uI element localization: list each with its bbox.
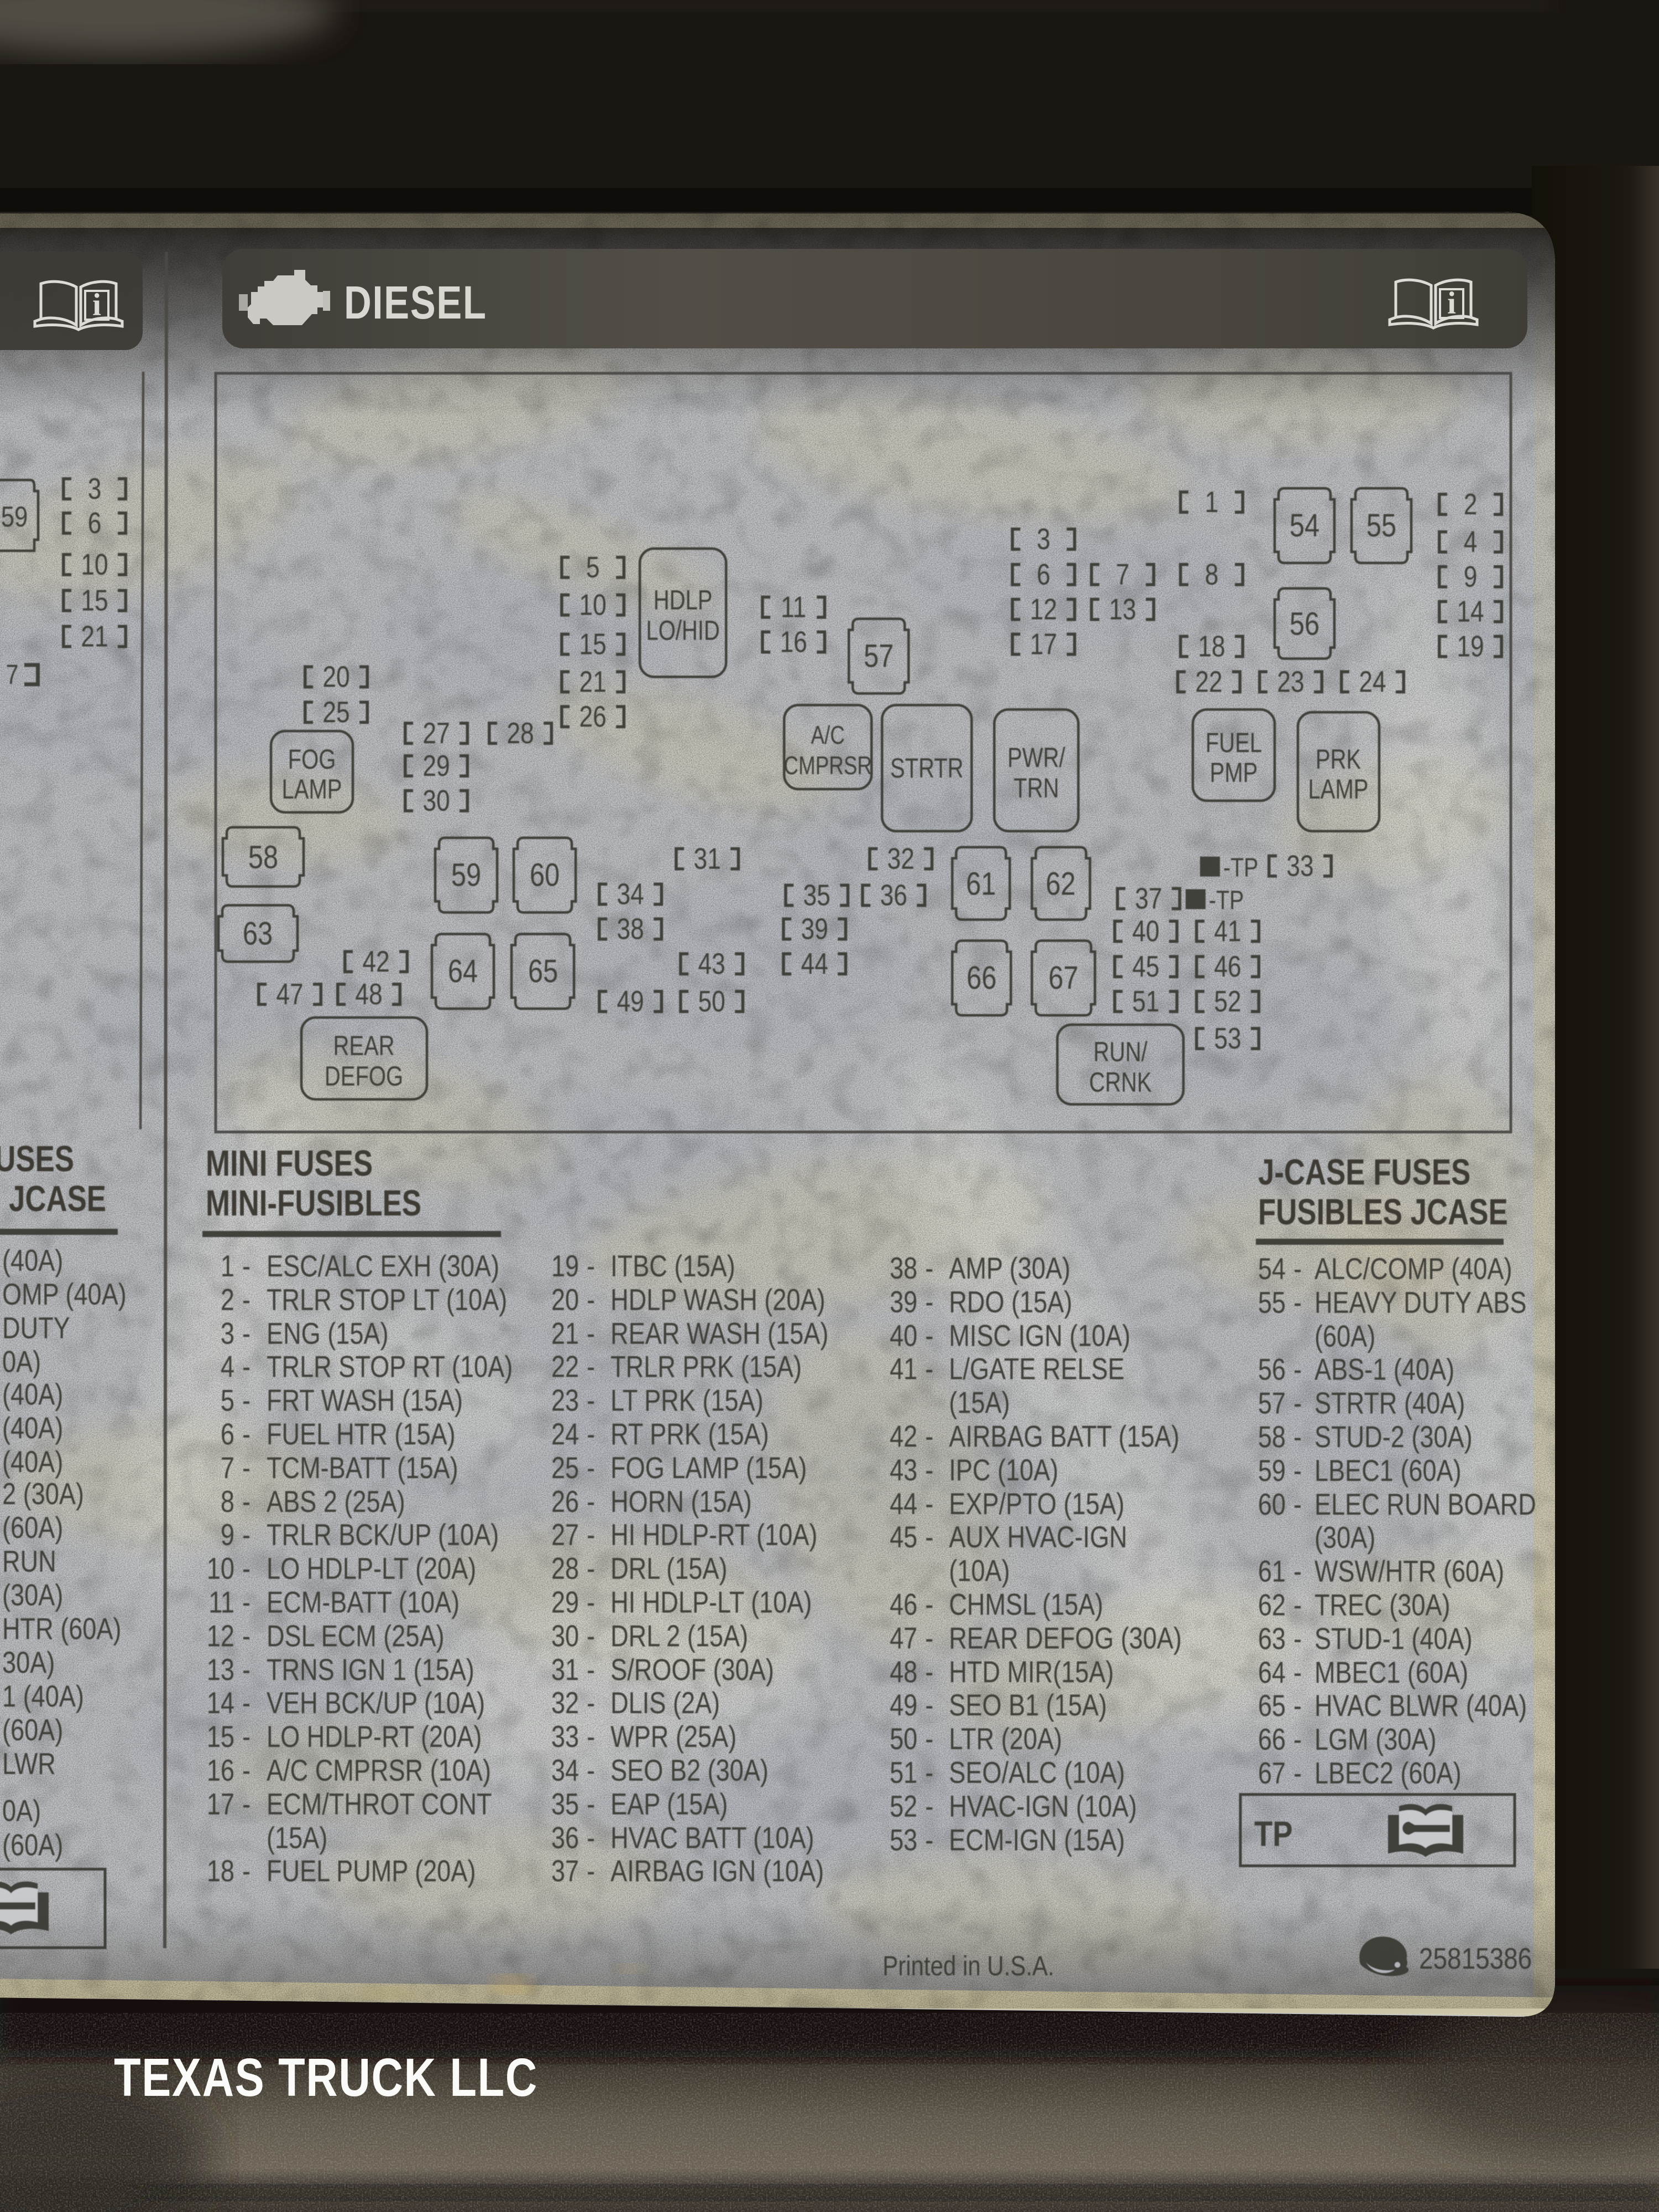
svg-text:42: 42 [890, 1419, 917, 1453]
svg-text:-: - [1293, 1352, 1302, 1386]
svg-text:MISC IGN (10A): MISC IGN (10A) [949, 1318, 1130, 1353]
svg-text:36: 36 [551, 1820, 579, 1855]
svg-text:(40A): (40A) [2, 1377, 63, 1411]
svg-text:58: 58 [1258, 1420, 1286, 1454]
svg-text:-: - [1293, 1487, 1302, 1521]
svg-text:30: 30 [422, 784, 450, 817]
svg-text:-: - [242, 1719, 251, 1754]
svg-text:-: - [242, 1619, 251, 1653]
svg-text:47: 47 [890, 1621, 917, 1655]
svg-text:13: 13 [1109, 593, 1136, 626]
svg-text:-: - [587, 1417, 595, 1451]
svg-text:-: - [1293, 1655, 1302, 1689]
svg-text:FUSES: FUSES [0, 1138, 74, 1179]
svg-text:60: 60 [530, 858, 560, 893]
svg-text:ABS 2 (25A): ABS 2 (25A) [267, 1484, 405, 1519]
svg-text:25: 25 [551, 1451, 579, 1485]
svg-text:-: - [587, 1619, 595, 1653]
svg-text:12: 12 [1030, 593, 1057, 626]
svg-text:-: - [242, 1484, 251, 1519]
svg-text:(40A): (40A) [2, 1243, 63, 1277]
svg-text:64: 64 [448, 954, 478, 989]
svg-text:WPR (25A): WPR (25A) [611, 1719, 737, 1754]
svg-text:AUX HVAC-IGN: AUX HVAC-IGN [949, 1520, 1127, 1554]
svg-text:56: 56 [1258, 1352, 1286, 1386]
svg-text:VEH BCK/UP (10A): VEH BCK/UP (10A) [267, 1686, 485, 1720]
svg-text:54: 54 [1290, 508, 1319, 544]
svg-text:19: 19 [551, 1249, 579, 1283]
svg-text:L/GATE RELSE: L/GATE RELSE [949, 1352, 1124, 1386]
svg-text:-: - [587, 1585, 595, 1619]
svg-text:(40A): (40A) [2, 1444, 63, 1479]
svg-text:HI HDLP-RT (10A): HI HDLP-RT (10A) [611, 1517, 817, 1552]
svg-text:49: 49 [890, 1688, 917, 1722]
svg-text:-: - [925, 1453, 933, 1487]
svg-text:44: 44 [890, 1486, 917, 1521]
svg-text:-: - [1293, 1756, 1302, 1790]
svg-text:4: 4 [221, 1349, 234, 1384]
svg-text:SEO B1 (15A): SEO B1 (15A) [949, 1688, 1107, 1722]
svg-text:35: 35 [551, 1787, 579, 1821]
svg-text:51: 51 [1132, 985, 1159, 1018]
svg-text:19: 19 [1457, 630, 1484, 663]
svg-text:37: 37 [551, 1854, 579, 1888]
svg-text:10: 10 [81, 548, 108, 581]
svg-text:i: i [1447, 286, 1456, 321]
svg-text:-: - [925, 1621, 933, 1655]
svg-text:30A): 30A) [2, 1645, 55, 1679]
svg-text:9: 9 [1464, 560, 1478, 593]
svg-text:-: - [1293, 1251, 1302, 1286]
svg-text:46: 46 [1214, 950, 1241, 983]
svg-text:27: 27 [422, 717, 450, 750]
svg-text:DSL ECM (25A): DSL ECM (25A) [267, 1619, 445, 1653]
svg-text:-: - [1293, 1386, 1302, 1420]
svg-text:TRLR BCK/UP (10A): TRLR BCK/UP (10A) [267, 1517, 499, 1552]
svg-text:15: 15 [207, 1719, 234, 1754]
svg-text:REAR: REAR [333, 1030, 394, 1061]
svg-text:23: 23 [551, 1383, 579, 1417]
svg-text:38: 38 [890, 1251, 917, 1285]
svg-text:18: 18 [207, 1854, 234, 1888]
svg-text:-: - [242, 1753, 251, 1787]
svg-text:28: 28 [551, 1551, 579, 1585]
svg-text:-: - [242, 1349, 251, 1384]
svg-text:-: - [925, 1688, 933, 1722]
svg-text:6: 6 [221, 1417, 234, 1451]
svg-text:-: - [1293, 1554, 1302, 1588]
svg-text:66: 66 [1258, 1722, 1286, 1756]
svg-text:41: 41 [890, 1352, 917, 1386]
svg-text:-: - [587, 1787, 595, 1821]
svg-text:(30A): (30A) [2, 1578, 63, 1612]
svg-text:49: 49 [617, 985, 644, 1018]
svg-text:21: 21 [81, 620, 108, 653]
svg-text:-: - [587, 1854, 595, 1888]
svg-text:4: 4 [1464, 525, 1478, 559]
svg-text:EXP/PTO (15A): EXP/PTO (15A) [949, 1486, 1124, 1521]
svg-text:FOG: FOG [288, 744, 336, 775]
svg-text:10: 10 [579, 588, 606, 622]
svg-text:REAR DEFOG (30A): REAR DEFOG (30A) [949, 1621, 1182, 1655]
svg-text:2: 2 [1464, 488, 1478, 521]
svg-text:15: 15 [579, 628, 606, 661]
svg-text:(30A): (30A) [1314, 1520, 1375, 1554]
svg-text:53: 53 [890, 1823, 917, 1857]
svg-text:LWR: LWR [2, 1746, 56, 1781]
svg-text:SEO/ALC (10A): SEO/ALC (10A) [949, 1755, 1125, 1790]
svg-text:OMP (40A): OMP (40A) [2, 1277, 127, 1311]
svg-text:34: 34 [551, 1753, 579, 1787]
svg-text:TRLR STOP RT (10A): TRLR STOP RT (10A) [267, 1349, 513, 1384]
svg-text:-: - [1293, 1588, 1302, 1622]
svg-text:DEFOG: DEFOG [325, 1061, 403, 1092]
svg-text:RT PRK (15A): RT PRK (15A) [611, 1417, 769, 1451]
svg-text:7: 7 [6, 659, 19, 690]
svg-text:22: 22 [551, 1349, 579, 1384]
svg-text:2 (30A): 2 (30A) [2, 1477, 84, 1511]
svg-text:0A): 0A) [2, 1344, 41, 1379]
svg-text:20: 20 [322, 660, 349, 693]
svg-text:21: 21 [551, 1316, 579, 1350]
svg-text:43: 43 [698, 947, 725, 980]
svg-text:43: 43 [890, 1453, 917, 1487]
svg-text:-: - [925, 1587, 933, 1621]
svg-text:16: 16 [780, 625, 807, 659]
svg-text:-: - [242, 1249, 251, 1283]
svg-text:45: 45 [1132, 950, 1159, 983]
svg-text:HEAVY DUTY ABS: HEAVY DUTY ABS [1314, 1285, 1526, 1319]
svg-text:MINI FUSES: MINI FUSES [206, 1142, 373, 1183]
svg-text:-: - [1293, 1688, 1302, 1723]
svg-text:15: 15 [81, 584, 108, 617]
svg-text:25815386: 25815386 [1419, 1942, 1532, 1975]
svg-text:LAMP: LAMP [1308, 774, 1369, 805]
svg-text:FUEL PUMP (20A): FUEL PUMP (20A) [267, 1854, 476, 1888]
svg-text:29: 29 [422, 749, 450, 782]
svg-text:48: 48 [355, 978, 382, 1011]
svg-text:37: 37 [1135, 882, 1162, 915]
svg-text:39: 39 [801, 912, 828, 946]
svg-text:STUD-2 (30A): STUD-2 (30A) [1314, 1420, 1473, 1454]
svg-text:-: - [925, 1285, 933, 1319]
svg-text:DIESEL: DIESEL [344, 277, 487, 329]
svg-text:40: 40 [890, 1318, 917, 1353]
svg-text:8: 8 [221, 1484, 234, 1519]
svg-text:40: 40 [1132, 915, 1159, 948]
svg-text:65: 65 [528, 954, 558, 989]
svg-text:-: - [587, 1316, 595, 1350]
svg-text:26: 26 [551, 1484, 579, 1519]
svg-text:38: 38 [617, 912, 644, 946]
svg-text:TRNS IGN 1 (15A): TRNS IGN 1 (15A) [267, 1652, 474, 1687]
svg-text:TREC (30A): TREC (30A) [1314, 1588, 1451, 1622]
svg-text:46: 46 [890, 1587, 917, 1621]
svg-text:-: - [242, 1517, 251, 1552]
svg-text:RUN: RUN [2, 1544, 56, 1578]
svg-text:59: 59 [451, 858, 481, 893]
svg-text:WSW/HTR (60A): WSW/HTR (60A) [1314, 1554, 1504, 1588]
svg-text:LAMP: LAMP [282, 774, 342, 805]
svg-text:ECM-BATT (10A): ECM-BATT (10A) [267, 1585, 460, 1619]
svg-text:MBEC1 (60A): MBEC1 (60A) [1314, 1655, 1468, 1689]
svg-text:51: 51 [890, 1755, 917, 1790]
svg-text:ELEC RUN BOARD: ELEC RUN BOARD [1314, 1487, 1536, 1521]
svg-text:CRNK: CRNK [1089, 1067, 1151, 1098]
svg-text:CMPRSR: CMPRSR [784, 751, 872, 780]
svg-text:56: 56 [1290, 607, 1319, 642]
svg-text:STRTR (40A): STRTR (40A) [1314, 1386, 1465, 1420]
svg-text:5: 5 [586, 551, 600, 584]
svg-text:11: 11 [781, 591, 806, 624]
svg-text:3: 3 [88, 472, 102, 505]
svg-text:-: - [587, 1282, 595, 1317]
svg-text:ENG (15A): ENG (15A) [267, 1316, 388, 1350]
svg-text:-: - [587, 1820, 595, 1855]
svg-text:(40A): (40A) [2, 1411, 63, 1445]
svg-text:36: 36 [880, 879, 907, 912]
svg-text:7: 7 [1116, 558, 1130, 591]
svg-text:67: 67 [1048, 961, 1078, 996]
svg-text:-: - [1293, 1285, 1302, 1319]
svg-text:22: 22 [1195, 665, 1222, 698]
svg-text:(15A): (15A) [267, 1820, 327, 1855]
svg-text:2: 2 [221, 1282, 234, 1317]
svg-text:48: 48 [890, 1655, 917, 1689]
svg-text:-: - [925, 1352, 933, 1386]
svg-text:-: - [925, 1789, 933, 1823]
svg-text:32: 32 [887, 842, 914, 875]
svg-text:DUTY: DUTY [2, 1311, 70, 1345]
svg-text:IPC (10A): IPC (10A) [949, 1453, 1058, 1487]
svg-text:61: 61 [966, 867, 996, 902]
svg-text:-: - [1293, 1453, 1302, 1488]
svg-text:A/C: A/C [811, 721, 844, 749]
svg-text:HORN (15A): HORN (15A) [611, 1484, 752, 1519]
svg-text:6: 6 [88, 507, 102, 540]
svg-text:-: - [925, 1520, 933, 1554]
svg-text:12: 12 [207, 1619, 234, 1653]
svg-text:PWR/: PWR/ [1008, 742, 1066, 773]
svg-text:FUEL: FUEL [1206, 727, 1262, 758]
svg-text:16: 16 [207, 1753, 234, 1787]
svg-text:LTR (20A): LTR (20A) [949, 1721, 1062, 1756]
svg-text:i: i [92, 288, 101, 322]
svg-text:50: 50 [698, 985, 725, 1018]
svg-text:23: 23 [1277, 665, 1304, 698]
svg-text:DLIS (2A): DLIS (2A) [611, 1686, 720, 1720]
svg-text:6: 6 [1037, 558, 1051, 591]
svg-text:-: - [242, 1787, 251, 1821]
svg-text:13: 13 [207, 1652, 234, 1687]
svg-text:DRL (15A): DRL (15A) [611, 1551, 727, 1585]
svg-text:-: - [587, 1719, 595, 1754]
svg-text:HTR (60A): HTR (60A) [2, 1611, 121, 1646]
svg-text:1 (40A): 1 (40A) [2, 1679, 84, 1713]
svg-text:EAP (15A): EAP (15A) [611, 1787, 728, 1821]
svg-text:TRLR STOP LT (10A): TRLR STOP LT (10A) [267, 1282, 507, 1317]
svg-text:HTD MIR(15A): HTD MIR(15A) [949, 1655, 1114, 1689]
svg-text:61: 61 [1258, 1554, 1286, 1588]
svg-text:21: 21 [579, 665, 606, 698]
svg-text:TRN: TRN [1014, 773, 1059, 804]
svg-text:-: - [242, 1316, 251, 1350]
svg-text:FOG LAMP (15A): FOG LAMP (15A) [611, 1451, 807, 1485]
svg-text:FRT WASH (15A): FRT WASH (15A) [267, 1383, 463, 1417]
svg-text:24: 24 [551, 1417, 579, 1451]
svg-text:59: 59 [1, 502, 28, 533]
svg-text:PMP: PMP [1210, 757, 1258, 788]
svg-text:TCM-BATT (15A): TCM-BATT (15A) [267, 1451, 458, 1485]
svg-text:3: 3 [221, 1316, 234, 1350]
svg-text:-: - [925, 1755, 933, 1790]
svg-text:-: - [587, 1551, 595, 1585]
svg-text:32: 32 [551, 1686, 579, 1720]
svg-text:3: 3 [1037, 523, 1051, 556]
svg-text:LO HDLP-LT (20A): LO HDLP-LT (20A) [267, 1551, 476, 1585]
svg-text:S/ROOF (30A): S/ROOF (30A) [611, 1652, 774, 1687]
svg-text:9: 9 [221, 1517, 234, 1552]
svg-text:55: 55 [1366, 508, 1396, 544]
svg-text:34: 34 [617, 878, 644, 911]
svg-text:-: - [587, 1383, 595, 1417]
svg-text:-: - [1293, 1420, 1302, 1454]
svg-text:-: - [925, 1419, 933, 1453]
svg-text:52: 52 [1214, 985, 1241, 1018]
svg-text:52: 52 [890, 1789, 917, 1823]
svg-text:50: 50 [890, 1721, 917, 1756]
svg-text:(60A): (60A) [2, 1828, 63, 1862]
svg-text:5: 5 [221, 1383, 234, 1417]
svg-text:PRK: PRK [1316, 744, 1361, 775]
svg-text:-: - [242, 1854, 251, 1888]
svg-text:28: 28 [507, 717, 534, 750]
svg-text:0A): 0A) [2, 1793, 41, 1828]
svg-text:J-CASE FUSES: J-CASE FUSES [1258, 1151, 1470, 1192]
svg-text:57: 57 [864, 639, 894, 674]
svg-text:REAR WASH (15A): REAR WASH (15A) [611, 1316, 828, 1350]
svg-text:-TP: -TP [1223, 853, 1258, 883]
svg-text:59: 59 [1258, 1453, 1286, 1488]
svg-text:LO HDLP-RT (20A): LO HDLP-RT (20A) [267, 1719, 482, 1754]
svg-text:-: - [242, 1585, 251, 1619]
svg-text:57: 57 [1258, 1386, 1286, 1420]
svg-text:26: 26 [579, 700, 606, 733]
svg-text:RDO (15A): RDO (15A) [949, 1285, 1072, 1319]
svg-text:17: 17 [1030, 628, 1057, 661]
svg-text:-: - [1293, 1722, 1302, 1756]
svg-text:-: - [925, 1823, 933, 1857]
svg-text:STRTR: STRTR [890, 753, 964, 784]
svg-text:63: 63 [243, 916, 273, 952]
svg-text:-: - [925, 1721, 933, 1756]
svg-text:67: 67 [1258, 1756, 1286, 1790]
svg-text:-: - [242, 1451, 251, 1485]
svg-text:SEO B2 (30A): SEO B2 (30A) [611, 1753, 769, 1787]
svg-text:LBEC1 (60A): LBEC1 (60A) [1314, 1453, 1462, 1488]
svg-text:62: 62 [1046, 867, 1076, 902]
svg-text:-: - [242, 1417, 251, 1451]
svg-text:54: 54 [1258, 1251, 1286, 1286]
svg-text:(60A): (60A) [2, 1510, 63, 1545]
svg-text:(60A): (60A) [2, 1713, 63, 1747]
svg-text:HVAC BATT (10A): HVAC BATT (10A) [611, 1820, 814, 1855]
svg-text:60: 60 [1258, 1487, 1286, 1521]
svg-text:1: 1 [1205, 486, 1219, 519]
svg-text:-: - [242, 1652, 251, 1687]
svg-text:STUD-1 (40A): STUD-1 (40A) [1314, 1621, 1473, 1656]
svg-text:ABS-1 (40A): ABS-1 (40A) [1314, 1352, 1454, 1386]
svg-text:44: 44 [801, 947, 828, 980]
svg-text:20: 20 [551, 1282, 579, 1317]
svg-text:FUEL HTR (15A): FUEL HTR (15A) [267, 1417, 456, 1451]
svg-text:25: 25 [322, 696, 349, 729]
svg-text:-: - [587, 1652, 595, 1687]
svg-text:ALC/COMP (40A): ALC/COMP (40A) [1314, 1251, 1512, 1286]
svg-text:A/C CMPRSR (10A): A/C CMPRSR (10A) [267, 1753, 491, 1787]
svg-text:55: 55 [1258, 1285, 1286, 1319]
svg-text:66: 66 [967, 961, 997, 996]
svg-text:65: 65 [1258, 1688, 1286, 1723]
svg-text:-: - [242, 1383, 251, 1417]
svg-text:TRLR PRK (15A): TRLR PRK (15A) [611, 1349, 802, 1384]
svg-text:-: - [587, 1349, 595, 1384]
svg-text:MINI-FUSIBLES: MINI-FUSIBLES [206, 1182, 421, 1223]
svg-text:ITBC (15A): ITBC (15A) [611, 1249, 735, 1283]
svg-text:-: - [242, 1282, 251, 1317]
svg-text:24: 24 [1359, 665, 1386, 698]
svg-text:-: - [925, 1486, 933, 1521]
svg-text:-: - [925, 1251, 933, 1285]
svg-text:30: 30 [551, 1619, 579, 1653]
svg-text:18: 18 [1198, 630, 1225, 663]
svg-text:17: 17 [207, 1787, 234, 1821]
svg-text:-: - [1293, 1621, 1302, 1656]
svg-text:FUSIBLES JCASE: FUSIBLES JCASE [0, 1178, 106, 1219]
svg-text:(10A): (10A) [949, 1553, 1010, 1588]
svg-text:10: 10 [207, 1551, 234, 1585]
svg-text:-: - [242, 1551, 251, 1585]
svg-text:14: 14 [1457, 595, 1484, 628]
svg-text:FUSIBLES JCASE: FUSIBLES JCASE [1258, 1191, 1508, 1232]
svg-text:ESC/ALC EXH (30A): ESC/ALC EXH (30A) [267, 1249, 499, 1283]
svg-text:63: 63 [1258, 1621, 1286, 1656]
svg-text:HDLP WASH (20A): HDLP WASH (20A) [611, 1282, 825, 1317]
svg-text:-: - [587, 1753, 595, 1787]
svg-text:31: 31 [693, 842, 721, 875]
svg-text:CHMSL (15A): CHMSL (15A) [949, 1587, 1103, 1621]
svg-text:AIRBAG BATT (15A): AIRBAG BATT (15A) [949, 1419, 1180, 1453]
svg-text:-: - [925, 1318, 933, 1353]
svg-text:TP: TP [1254, 1814, 1292, 1854]
svg-text:HI HDLP-LT (10A): HI HDLP-LT (10A) [611, 1585, 812, 1619]
svg-text:11: 11 [208, 1585, 234, 1619]
svg-text:LO/HID: LO/HID [646, 615, 719, 646]
svg-text:-TP: -TP [1209, 885, 1244, 915]
svg-text:29: 29 [551, 1585, 579, 1619]
svg-text:27: 27 [551, 1517, 579, 1552]
svg-text:ECM-IGN (15A): ECM-IGN (15A) [949, 1823, 1125, 1857]
svg-text:RUN/: RUN/ [1093, 1036, 1147, 1067]
svg-text:HVAC BLWR (40A): HVAC BLWR (40A) [1314, 1688, 1527, 1723]
svg-text:53: 53 [1214, 1022, 1241, 1055]
svg-text:1: 1 [221, 1249, 234, 1283]
svg-text:HVAC-IGN (10A): HVAC-IGN (10A) [949, 1789, 1137, 1823]
svg-text:LGM (30A): LGM (30A) [1314, 1722, 1436, 1756]
svg-text:33: 33 [1286, 849, 1313, 883]
svg-text:-: - [587, 1249, 595, 1283]
svg-text:42: 42 [362, 945, 389, 978]
